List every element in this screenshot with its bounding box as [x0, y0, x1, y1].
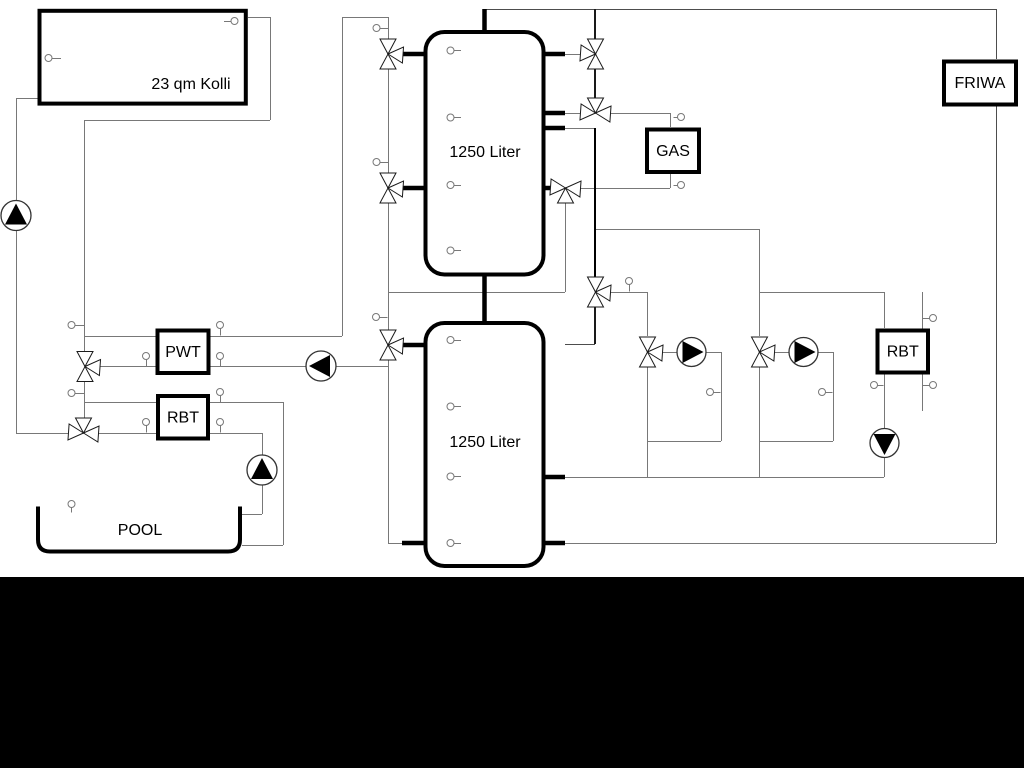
- svg-text:POOL: POOL: [118, 522, 163, 539]
- svg-text:FRIWA: FRIWA: [955, 75, 1006, 92]
- svg-text:RBT: RBT: [887, 344, 919, 361]
- svg-text:1250 Liter: 1250 Liter: [449, 144, 521, 161]
- svg-text:GAS: GAS: [656, 143, 690, 160]
- svg-text:PWT: PWT: [165, 344, 201, 361]
- svg-text:RBT: RBT: [167, 409, 199, 426]
- svg-text:23 qm Kolli: 23 qm Kolli: [151, 76, 230, 93]
- svg-text:1250 Liter: 1250 Liter: [449, 434, 521, 451]
